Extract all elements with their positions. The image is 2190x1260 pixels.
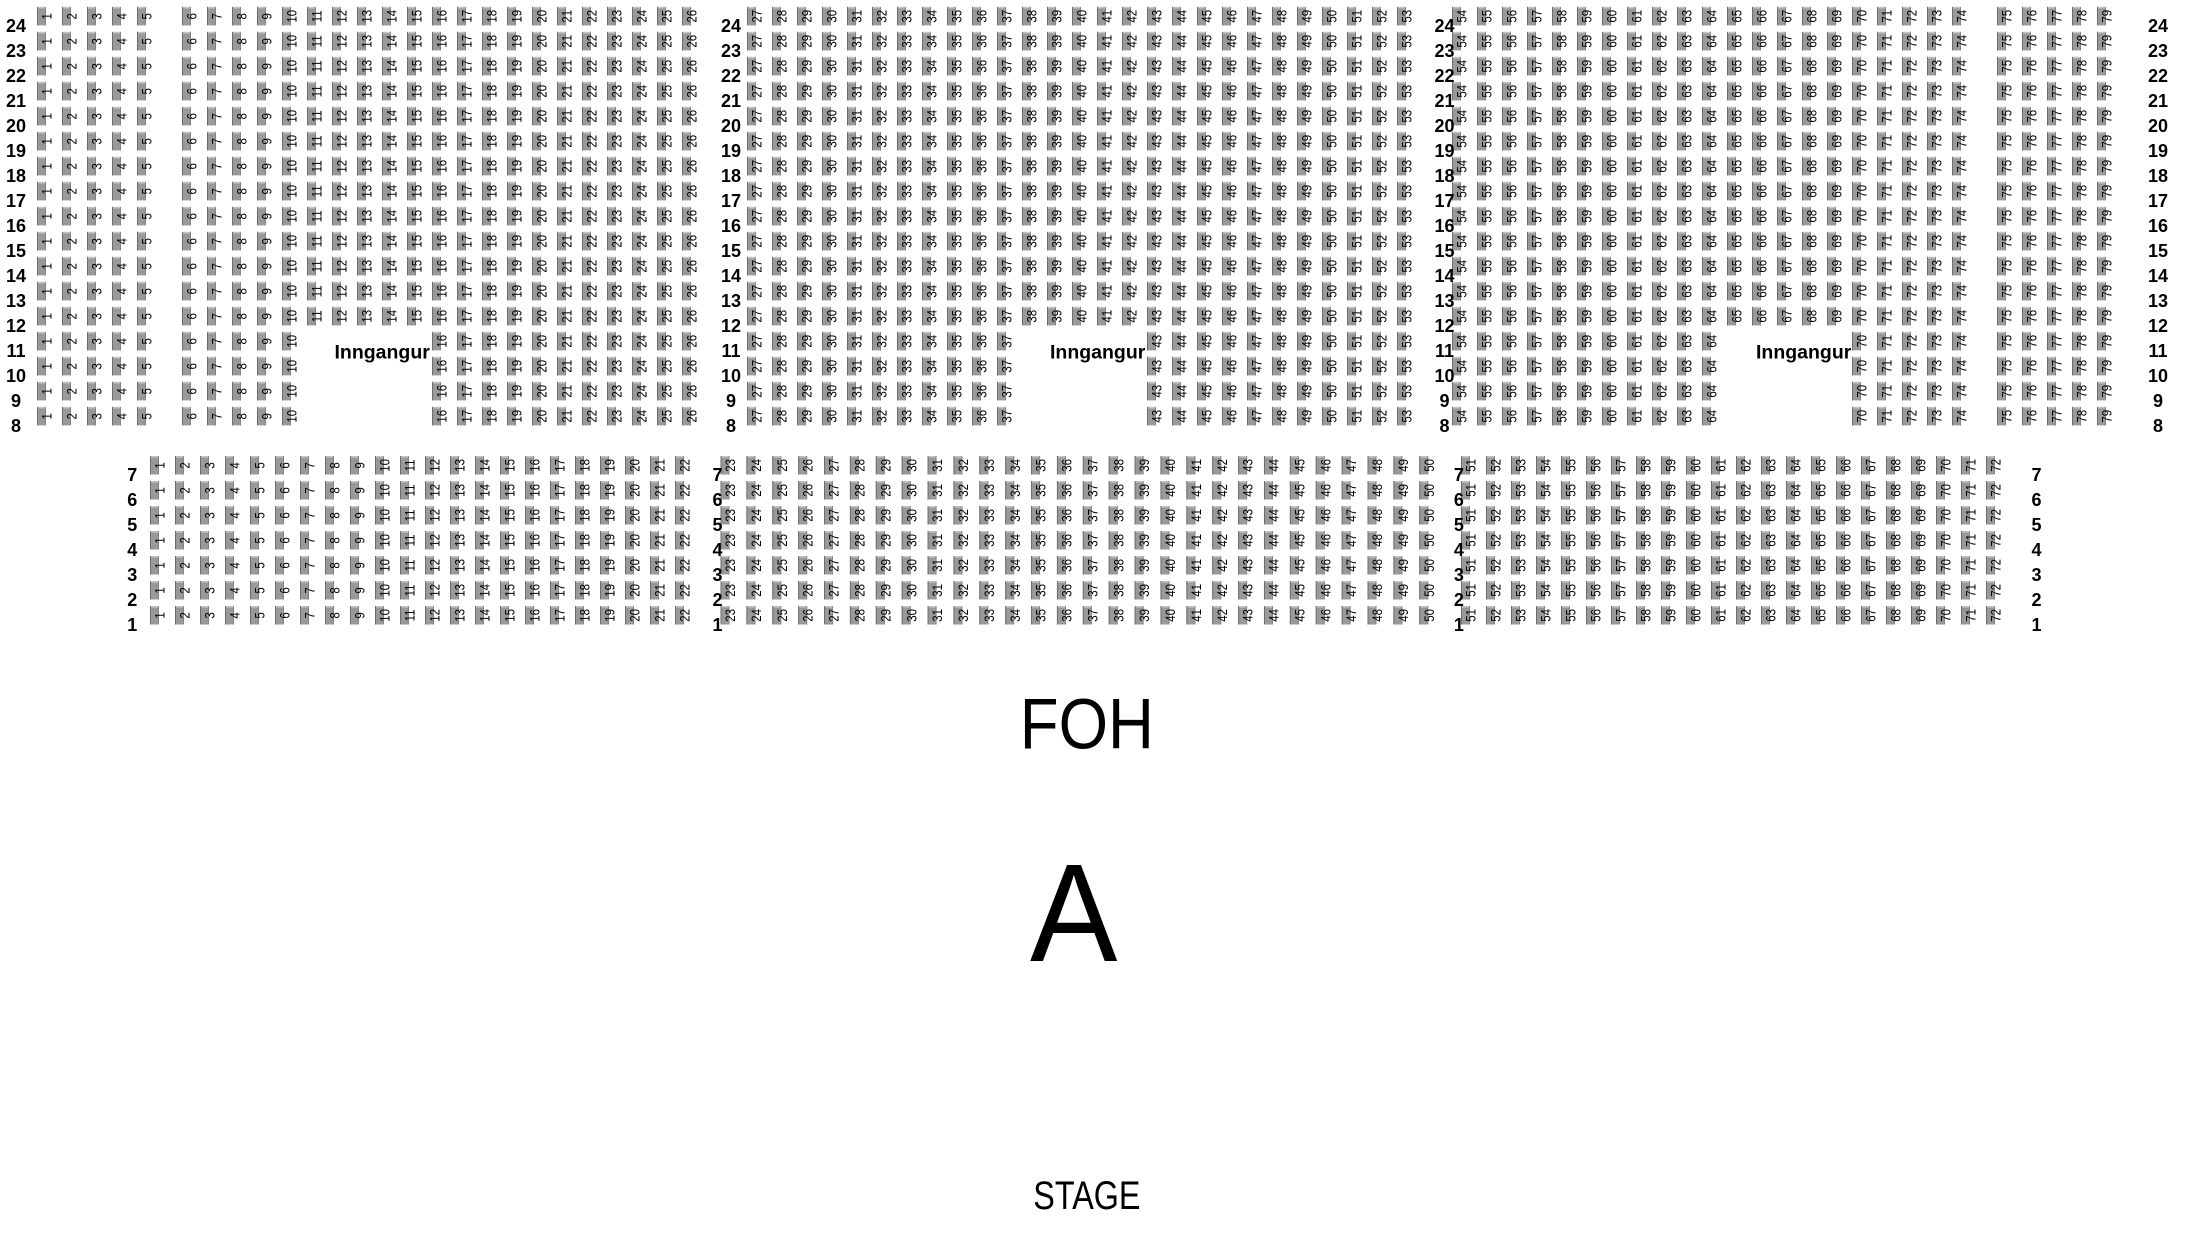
svg-text:60: 60 — [1687, 484, 1703, 497]
svg-text:55: 55 — [1478, 235, 1494, 248]
svg-text:13: 13 — [358, 110, 374, 123]
svg-text:76: 76 — [2023, 260, 2039, 273]
svg-text:39: 39 — [1048, 60, 1064, 73]
svg-text:17: 17 — [1434, 191, 1454, 211]
svg-text:62: 62 — [1653, 35, 1669, 48]
svg-text:55: 55 — [1562, 509, 1578, 522]
svg-text:54: 54 — [1453, 135, 1469, 148]
svg-text:64: 64 — [1703, 310, 1719, 323]
svg-text:20: 20 — [533, 310, 549, 323]
svg-text:40: 40 — [1073, 35, 1089, 48]
svg-text:52: 52 — [1373, 360, 1389, 373]
svg-text:19: 19 — [2148, 141, 2168, 161]
svg-text:35: 35 — [948, 135, 964, 148]
svg-text:69: 69 — [1828, 185, 1844, 198]
svg-text:4: 4 — [2031, 540, 2041, 560]
svg-text:39: 39 — [1136, 509, 1152, 522]
svg-text:42: 42 — [1123, 10, 1139, 23]
svg-text:5: 5 — [251, 612, 267, 618]
svg-text:47: 47 — [1248, 360, 1264, 373]
svg-text:6: 6 — [183, 213, 199, 219]
svg-text:2: 2 — [176, 512, 192, 518]
svg-text:13: 13 — [2148, 291, 2168, 311]
svg-text:18: 18 — [6, 166, 26, 186]
svg-text:31: 31 — [848, 335, 864, 348]
svg-text:51: 51 — [1348, 135, 1364, 148]
svg-text:62: 62 — [1653, 10, 1669, 23]
svg-text:23: 23 — [608, 360, 624, 373]
svg-text:33: 33 — [981, 509, 997, 522]
svg-text:3: 3 — [201, 462, 217, 468]
svg-text:60: 60 — [1603, 310, 1619, 323]
svg-text:48: 48 — [1273, 10, 1289, 23]
svg-text:72: 72 — [1987, 509, 2003, 522]
svg-text:18: 18 — [576, 509, 592, 522]
svg-text:19: 19 — [1434, 141, 1454, 161]
svg-text:43: 43 — [1148, 285, 1164, 298]
svg-text:42: 42 — [1123, 160, 1139, 173]
svg-text:38: 38 — [1023, 235, 1039, 248]
svg-text:66: 66 — [1753, 85, 1769, 98]
svg-text:35: 35 — [1033, 609, 1049, 622]
svg-text:55: 55 — [1478, 185, 1494, 198]
svg-text:65: 65 — [1728, 310, 1744, 323]
svg-text:30: 30 — [823, 185, 839, 198]
svg-text:64: 64 — [1703, 185, 1719, 198]
svg-text:16: 16 — [526, 534, 542, 547]
svg-text:27: 27 — [748, 35, 764, 48]
svg-text:56: 56 — [1503, 85, 1519, 98]
svg-text:6: 6 — [183, 113, 199, 119]
svg-text:21: 21 — [558, 335, 574, 348]
svg-text:19: 19 — [508, 135, 524, 148]
svg-text:15: 15 — [1434, 241, 1454, 261]
svg-text:25: 25 — [658, 85, 674, 98]
svg-text:42: 42 — [1214, 609, 1230, 622]
svg-text:75: 75 — [1998, 210, 2014, 223]
svg-text:21: 21 — [651, 509, 667, 522]
svg-text:66: 66 — [1753, 10, 1769, 23]
svg-text:24: 24 — [633, 10, 649, 23]
svg-text:77: 77 — [2048, 360, 2064, 373]
svg-text:60: 60 — [1603, 360, 1619, 373]
svg-text:51: 51 — [1348, 410, 1364, 423]
svg-text:16: 16 — [526, 559, 542, 572]
svg-text:1: 1 — [38, 63, 54, 69]
svg-text:62: 62 — [1653, 210, 1669, 223]
svg-text:49: 49 — [1298, 360, 1314, 373]
svg-text:49: 49 — [1298, 35, 1314, 48]
svg-text:14: 14 — [476, 534, 492, 547]
svg-text:6: 6 — [276, 562, 292, 568]
svg-text:17: 17 — [458, 385, 474, 398]
svg-text:8: 8 — [2153, 416, 2163, 436]
svg-text:26: 26 — [683, 60, 699, 73]
svg-text:68: 68 — [1887, 559, 1903, 572]
svg-text:55: 55 — [1478, 60, 1494, 73]
svg-text:71: 71 — [1878, 210, 1894, 223]
svg-text:46: 46 — [1317, 484, 1333, 497]
svg-text:70: 70 — [1853, 35, 1869, 48]
svg-text:7: 7 — [208, 88, 224, 94]
svg-text:15: 15 — [501, 609, 517, 622]
svg-text:54: 54 — [1453, 60, 1469, 73]
svg-text:63: 63 — [1678, 135, 1694, 148]
svg-text:43: 43 — [1148, 310, 1164, 323]
svg-text:34: 34 — [923, 110, 939, 123]
svg-text:62: 62 — [1737, 559, 1753, 572]
svg-text:6: 6 — [1454, 490, 1464, 510]
svg-text:61: 61 — [1712, 584, 1728, 597]
svg-text:72: 72 — [1903, 10, 1919, 23]
svg-text:64: 64 — [1703, 260, 1719, 273]
svg-text:46: 46 — [1223, 310, 1239, 323]
svg-text:10: 10 — [283, 410, 299, 423]
svg-text:9: 9 — [11, 391, 21, 411]
svg-text:66: 66 — [1753, 260, 1769, 273]
svg-text:38: 38 — [1110, 584, 1126, 597]
svg-text:43: 43 — [1240, 609, 1256, 622]
svg-text:20: 20 — [6, 116, 26, 136]
svg-text:5: 5 — [138, 213, 154, 219]
svg-text:63: 63 — [1762, 509, 1778, 522]
svg-text:64: 64 — [1703, 210, 1719, 223]
svg-text:8: 8 — [233, 188, 249, 194]
svg-text:1: 1 — [38, 238, 54, 244]
svg-text:25: 25 — [774, 559, 790, 572]
svg-text:50: 50 — [1323, 110, 1339, 123]
svg-text:48: 48 — [1273, 260, 1289, 273]
svg-text:56: 56 — [1503, 235, 1519, 248]
svg-text:78: 78 — [2073, 35, 2089, 48]
svg-text:47: 47 — [1343, 534, 1359, 547]
svg-text:67: 67 — [1778, 10, 1794, 23]
svg-text:38: 38 — [1023, 135, 1039, 148]
svg-text:17: 17 — [551, 459, 567, 472]
svg-text:32: 32 — [955, 459, 971, 472]
svg-text:61: 61 — [1712, 559, 1728, 572]
svg-text:42: 42 — [1214, 559, 1230, 572]
svg-text:76: 76 — [2023, 60, 2039, 73]
svg-text:41: 41 — [1098, 260, 1114, 273]
svg-text:18: 18 — [483, 210, 499, 223]
svg-text:37: 37 — [1084, 534, 1100, 547]
svg-text:2: 2 — [176, 537, 192, 543]
svg-text:10: 10 — [376, 559, 392, 572]
svg-text:58: 58 — [1637, 534, 1653, 547]
svg-text:78: 78 — [2073, 260, 2089, 273]
svg-text:68: 68 — [1803, 260, 1819, 273]
svg-text:58: 58 — [1553, 185, 1569, 198]
svg-text:6: 6 — [183, 13, 199, 19]
svg-text:24: 24 — [748, 559, 764, 572]
svg-text:20: 20 — [533, 60, 549, 73]
svg-text:6: 6 — [183, 388, 199, 394]
svg-text:48: 48 — [1273, 85, 1289, 98]
svg-text:58: 58 — [1637, 559, 1653, 572]
svg-text:75: 75 — [1998, 135, 2014, 148]
svg-text:9: 9 — [2153, 391, 2163, 411]
svg-text:71: 71 — [1878, 260, 1894, 273]
svg-text:26: 26 — [683, 310, 699, 323]
svg-text:7: 7 — [208, 238, 224, 244]
svg-text:14: 14 — [383, 10, 399, 23]
svg-text:14: 14 — [383, 160, 399, 173]
svg-text:20: 20 — [533, 110, 549, 123]
svg-text:19: 19 — [508, 210, 524, 223]
svg-text:50: 50 — [1323, 260, 1339, 273]
svg-text:53: 53 — [1512, 459, 1528, 472]
svg-text:31: 31 — [848, 160, 864, 173]
svg-text:51: 51 — [1348, 385, 1364, 398]
svg-text:48: 48 — [1369, 534, 1385, 547]
svg-text:3: 3 — [88, 363, 104, 369]
svg-text:2: 2 — [127, 590, 137, 610]
svg-text:12: 12 — [2148, 316, 2168, 336]
svg-text:49: 49 — [1395, 584, 1411, 597]
svg-text:22: 22 — [583, 385, 599, 398]
svg-text:18: 18 — [483, 385, 499, 398]
svg-text:35: 35 — [948, 335, 964, 348]
svg-text:48: 48 — [1273, 185, 1289, 198]
svg-text:28: 28 — [773, 10, 789, 23]
svg-text:53: 53 — [1398, 260, 1414, 273]
svg-text:14: 14 — [383, 235, 399, 248]
svg-text:33: 33 — [898, 260, 914, 273]
svg-text:18: 18 — [483, 185, 499, 198]
svg-text:14: 14 — [383, 110, 399, 123]
svg-text:24: 24 — [633, 160, 649, 173]
svg-text:31: 31 — [848, 260, 864, 273]
svg-text:71: 71 — [1878, 385, 1894, 398]
svg-text:43: 43 — [1240, 534, 1256, 547]
svg-text:45: 45 — [1198, 85, 1214, 98]
svg-text:68: 68 — [1887, 484, 1903, 497]
svg-text:25: 25 — [774, 484, 790, 497]
svg-text:37: 37 — [1084, 484, 1100, 497]
svg-text:20: 20 — [533, 210, 549, 223]
svg-text:64: 64 — [1787, 534, 1803, 547]
svg-text:4: 4 — [113, 63, 129, 69]
svg-text:7: 7 — [208, 163, 224, 169]
svg-text:11: 11 — [308, 35, 324, 47]
svg-text:16: 16 — [433, 335, 449, 348]
svg-text:67: 67 — [1862, 559, 1878, 572]
svg-text:70: 70 — [1853, 285, 1869, 298]
svg-text:55: 55 — [1478, 310, 1494, 323]
svg-text:2: 2 — [63, 138, 79, 144]
svg-text:50: 50 — [1421, 609, 1437, 622]
svg-text:35: 35 — [948, 60, 964, 73]
svg-text:35: 35 — [948, 385, 964, 398]
svg-text:62: 62 — [1653, 60, 1669, 73]
svg-text:21: 21 — [558, 10, 574, 23]
svg-text:57: 57 — [1528, 285, 1544, 298]
svg-text:61: 61 — [1712, 484, 1728, 497]
svg-text:25: 25 — [658, 335, 674, 348]
svg-text:11: 11 — [308, 260, 324, 272]
svg-text:19: 19 — [508, 60, 524, 73]
svg-text:47: 47 — [1343, 609, 1359, 622]
svg-text:46: 46 — [1223, 10, 1239, 23]
svg-text:45: 45 — [1291, 484, 1307, 497]
svg-text:50: 50 — [1323, 85, 1339, 98]
svg-text:12: 12 — [426, 509, 442, 522]
svg-text:45: 45 — [1198, 360, 1214, 373]
svg-text:31: 31 — [929, 559, 945, 572]
svg-text:14: 14 — [383, 310, 399, 323]
svg-text:68: 68 — [1803, 110, 1819, 123]
svg-text:35: 35 — [948, 360, 964, 373]
svg-text:63: 63 — [1678, 10, 1694, 23]
svg-text:31: 31 — [929, 484, 945, 497]
svg-text:61: 61 — [1628, 35, 1644, 48]
svg-text:14: 14 — [476, 609, 492, 622]
svg-text:53: 53 — [1512, 509, 1528, 522]
svg-text:72: 72 — [1903, 210, 1919, 223]
svg-text:45: 45 — [1198, 60, 1214, 73]
svg-text:43: 43 — [1148, 260, 1164, 273]
svg-text:17: 17 — [458, 285, 474, 298]
svg-text:3: 3 — [88, 238, 104, 244]
svg-text:28: 28 — [851, 609, 867, 622]
svg-text:36: 36 — [973, 310, 989, 323]
svg-text:67: 67 — [1778, 135, 1794, 148]
svg-text:69: 69 — [1828, 210, 1844, 223]
svg-text:40: 40 — [1162, 584, 1178, 597]
svg-text:19: 19 — [601, 459, 617, 472]
svg-text:58: 58 — [1637, 509, 1653, 522]
svg-text:37: 37 — [998, 35, 1014, 48]
svg-text:10: 10 — [283, 260, 299, 273]
svg-text:2: 2 — [63, 413, 79, 419]
svg-text:59: 59 — [1578, 135, 1594, 148]
svg-text:69: 69 — [1828, 60, 1844, 73]
svg-text:54: 54 — [1537, 509, 1553, 522]
svg-text:76: 76 — [2023, 410, 2039, 423]
svg-text:5: 5 — [138, 38, 154, 44]
svg-text:34: 34 — [1007, 459, 1023, 472]
svg-text:78: 78 — [2073, 235, 2089, 248]
svg-text:71: 71 — [1962, 459, 1978, 472]
svg-text:53: 53 — [1398, 185, 1414, 198]
svg-text:59: 59 — [1578, 285, 1594, 298]
svg-text:8: 8 — [233, 63, 249, 69]
svg-text:11: 11 — [308, 185, 324, 197]
svg-text:72: 72 — [1903, 135, 1919, 148]
svg-text:29: 29 — [798, 110, 814, 123]
svg-text:5: 5 — [138, 363, 154, 369]
svg-text:38: 38 — [1023, 210, 1039, 223]
svg-text:55: 55 — [1562, 559, 1578, 572]
svg-text:17: 17 — [458, 135, 474, 148]
svg-text:78: 78 — [2073, 60, 2089, 73]
svg-text:58: 58 — [1553, 210, 1569, 223]
svg-text:38: 38 — [1110, 509, 1126, 522]
svg-text:18: 18 — [483, 160, 499, 173]
svg-text:53: 53 — [1398, 10, 1414, 23]
svg-text:6: 6 — [183, 38, 199, 44]
svg-text:2: 2 — [63, 13, 79, 19]
svg-text:6: 6 — [127, 490, 137, 510]
svg-text:64: 64 — [1703, 285, 1719, 298]
svg-text:26: 26 — [683, 210, 699, 223]
svg-text:41: 41 — [1188, 609, 1204, 622]
svg-text:15: 15 — [408, 260, 424, 273]
svg-text:10: 10 — [283, 235, 299, 248]
svg-text:71: 71 — [1878, 135, 1894, 148]
svg-text:31: 31 — [929, 459, 945, 472]
svg-text:50: 50 — [1421, 459, 1437, 472]
svg-text:57: 57 — [1528, 310, 1544, 323]
svg-text:19: 19 — [508, 360, 524, 373]
svg-text:55: 55 — [1478, 260, 1494, 273]
svg-text:37: 37 — [998, 10, 1014, 23]
svg-text:4: 4 — [226, 612, 242, 618]
svg-text:56: 56 — [1587, 509, 1603, 522]
svg-text:51: 51 — [1348, 60, 1364, 73]
svg-text:78: 78 — [2073, 310, 2089, 323]
svg-text:37: 37 — [998, 335, 1014, 348]
svg-text:62: 62 — [1653, 110, 1669, 123]
svg-text:56: 56 — [1503, 60, 1519, 73]
svg-text:47: 47 — [1248, 110, 1264, 123]
svg-text:57: 57 — [1612, 459, 1628, 472]
svg-text:28: 28 — [773, 110, 789, 123]
svg-text:67: 67 — [1778, 85, 1794, 98]
svg-text:60: 60 — [1603, 35, 1619, 48]
svg-text:36: 36 — [1058, 534, 1074, 547]
svg-text:58: 58 — [1637, 484, 1653, 497]
svg-text:11: 11 — [308, 85, 324, 97]
svg-text:60: 60 — [1687, 509, 1703, 522]
svg-text:30: 30 — [823, 310, 839, 323]
svg-text:52: 52 — [1373, 10, 1389, 23]
svg-text:39: 39 — [1048, 285, 1064, 298]
svg-text:69: 69 — [1828, 35, 1844, 48]
svg-text:64: 64 — [1703, 385, 1719, 398]
svg-text:63: 63 — [1762, 584, 1778, 597]
svg-text:61: 61 — [1712, 509, 1728, 522]
svg-text:63: 63 — [1678, 85, 1694, 98]
svg-text:27: 27 — [748, 385, 764, 398]
svg-text:13: 13 — [451, 534, 467, 547]
svg-text:58: 58 — [1553, 310, 1569, 323]
svg-text:24: 24 — [748, 509, 764, 522]
svg-text:58: 58 — [1553, 85, 1569, 98]
svg-text:5: 5 — [138, 238, 154, 244]
svg-text:2: 2 — [176, 612, 192, 618]
svg-text:38: 38 — [1023, 185, 1039, 198]
svg-text:39: 39 — [1136, 609, 1152, 622]
svg-text:72: 72 — [1903, 60, 1919, 73]
svg-text:62: 62 — [1653, 285, 1669, 298]
svg-text:19: 19 — [508, 235, 524, 248]
svg-text:72: 72 — [1903, 360, 1919, 373]
svg-text:62: 62 — [1653, 410, 1669, 423]
svg-text:7: 7 — [208, 313, 224, 319]
svg-text:3: 3 — [88, 288, 104, 294]
svg-text:65: 65 — [1728, 160, 1744, 173]
svg-text:3: 3 — [201, 512, 217, 518]
svg-text:48: 48 — [1273, 310, 1289, 323]
svg-text:12: 12 — [426, 459, 442, 472]
svg-text:75: 75 — [1998, 60, 2014, 73]
svg-text:31: 31 — [848, 310, 864, 323]
svg-text:16: 16 — [433, 360, 449, 373]
svg-text:6: 6 — [183, 88, 199, 94]
svg-text:48: 48 — [1273, 410, 1289, 423]
